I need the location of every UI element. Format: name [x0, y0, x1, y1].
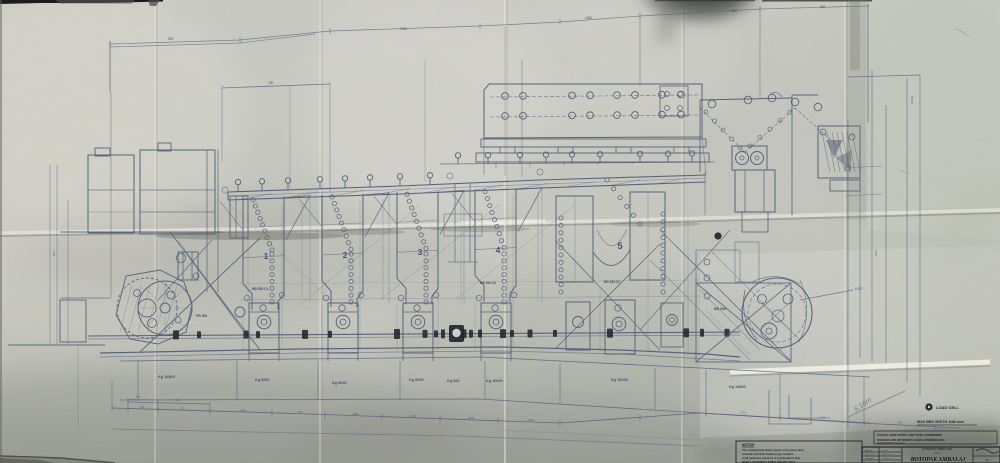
- svg-text:1400: 1400: [820, 416, 826, 420]
- svg-text:26: 26: [985, 458, 989, 462]
- svg-text:checked: checked: [865, 458, 874, 460]
- svg-text:______ _____: ______ _____: [876, 440, 893, 443]
- svg-text:BOTOPAK AMBALAJ: BOTOPAK AMBALAJ: [910, 457, 967, 463]
- svg-text:310: 310: [136, 396, 141, 399]
- svg-text:900: 900: [820, 5, 826, 9]
- svg-text:5: 5: [617, 241, 623, 252]
- svg-text:2: 2: [343, 250, 348, 260]
- svg-text:12-05: 12-05: [882, 450, 888, 452]
- svg-text:Kg 8000: Kg 8000: [409, 378, 424, 382]
- svg-text:3: 3: [418, 247, 423, 257]
- svg-text:1500: 1500: [240, 408, 246, 412]
- svg-text:BB 908: BB 908: [714, 307, 726, 311]
- svg-text:Kg 8600: Kg 8600: [332, 381, 347, 385]
- svg-text:1500: 1500: [585, 16, 592, 20]
- svg-text:Kg 14800: Kg 14800: [158, 375, 175, 379]
- svg-text:scale 1:50: scale 1:50: [882, 454, 893, 456]
- svg-text:NOTICE: NOTICE: [742, 443, 755, 447]
- svg-text:310: 310: [180, 406, 185, 410]
- svg-text:1250: 1250: [874, 250, 878, 257]
- svg-text:1750: 1750: [52, 250, 56, 257]
- svg-text:of all machines columns in con: of all machines columns in conformance t…: [742, 456, 800, 460]
- svg-text:19-10-78: 19-10-78: [882, 458, 892, 460]
- svg-text:900: 900: [898, 420, 903, 424]
- svg-text:BB 855 C1: BB 855 C1: [252, 287, 268, 291]
- svg-text:This drawing bila plants layou: This drawing bila plants layout of the p…: [742, 448, 805, 452]
- svg-text:consider and their loads prope: consider and their loads proper location: [742, 452, 794, 456]
- svg-text:PB 908: PB 908: [196, 314, 207, 318]
- svg-text:4: 4: [496, 245, 501, 255]
- svg-text:2050: 2050: [400, 27, 407, 31]
- svg-text:BB 855 S2: BB 855 S2: [604, 280, 620, 284]
- svg-text:1: 1: [264, 251, 269, 261]
- svg-text:Kg 14800: Kg 14800: [729, 385, 746, 389]
- svg-text:Kg 10000: Kg 10000: [486, 379, 503, 383]
- svg-text:45-67-89: 45-67-89: [865, 454, 875, 456]
- svg-text:Kg 800: Kg 800: [447, 379, 459, 383]
- svg-text:1250: 1250: [410, 414, 416, 418]
- svg-text:8 RO: 8 RO: [855, 287, 863, 291]
- svg-text:dwg no: dwg no: [865, 450, 873, 452]
- svg-text:Kg 8600: Kg 8600: [255, 378, 270, 382]
- svg-text:1640: 1640: [528, 418, 534, 422]
- svg-text:150: 150: [140, 405, 145, 409]
- svg-text:1485: 1485: [352, 412, 358, 416]
- svg-text:730: 730: [175, 399, 180, 402]
- svg-text:750: 750: [298, 410, 303, 414]
- svg-text:1350: 1350: [730, 9, 737, 13]
- svg-text:862.5: 862.5: [910, 96, 914, 104]
- svg-text:Kg 10600: Kg 10600: [611, 378, 628, 382]
- svg-text:buyer's acceptance agrees with: buyer's acceptance agrees with the specs: [742, 460, 796, 463]
- svg-text:a ton: a ton: [934, 452, 940, 455]
- svg-text:LOAD CELL: LOAD CELL: [936, 405, 959, 410]
- svg-text:1050: 1050: [468, 416, 474, 420]
- svg-text:700: 700: [268, 81, 274, 85]
- svg-text:MAX BED WIDTH 1180 mm: MAX BED WIDTH 1180 mm: [917, 420, 964, 424]
- svg-text:FOR BALANCE SUPPLY AND TO BE C: FOR BALANCE SUPPLY AND TO BE CONSIDERED: [877, 433, 942, 437]
- svg-text:2110: 2110: [740, 411, 746, 415]
- svg-text:300: 300: [168, 37, 174, 41]
